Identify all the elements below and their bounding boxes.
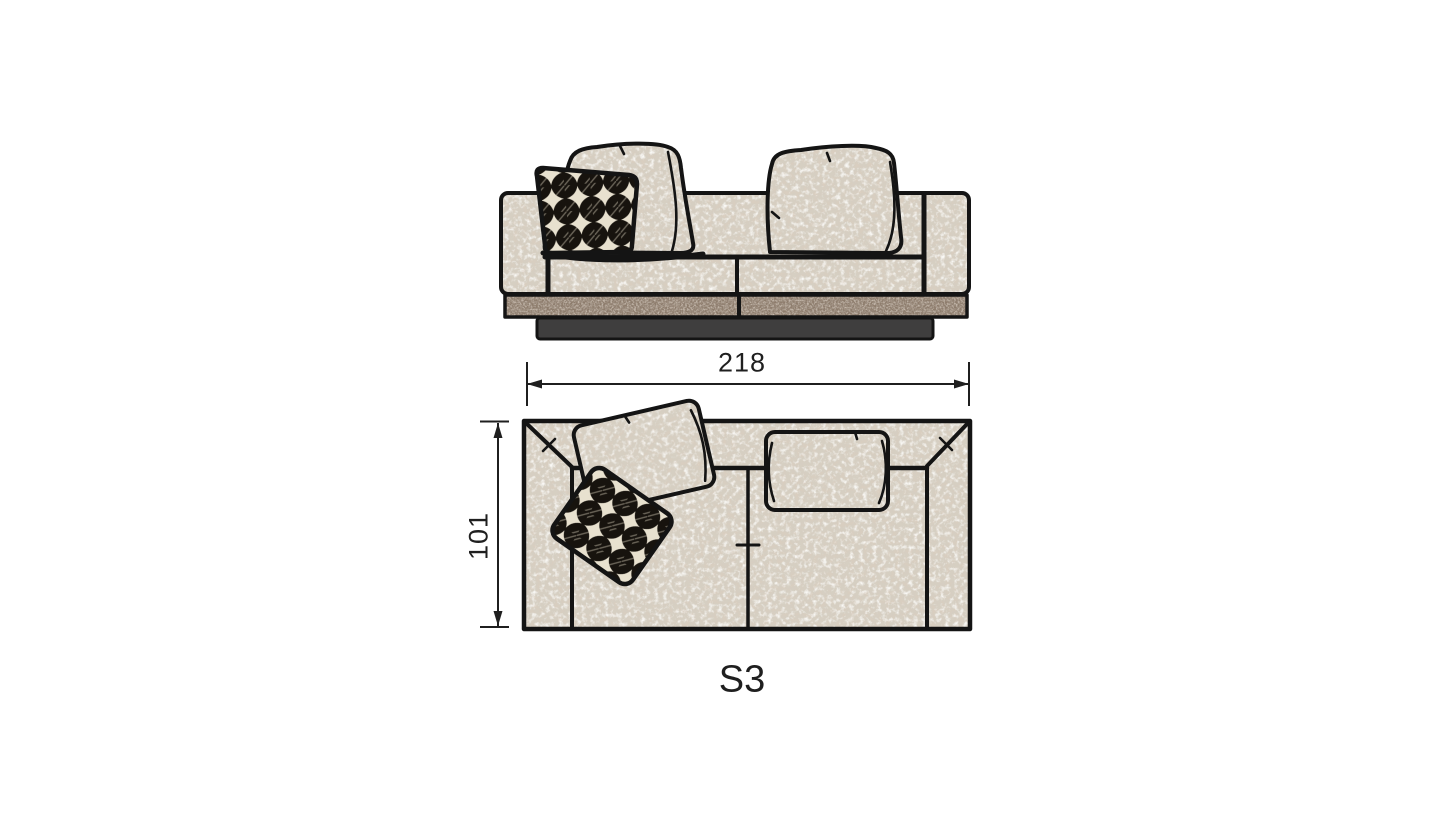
- accent-pillow-fill: [537, 168, 637, 253]
- front-view: [501, 144, 969, 339]
- sofa-technical-drawing: 218 101 S3: [0, 0, 1445, 813]
- width-dimension-value: 218: [718, 348, 766, 379]
- arrow-down-icon: [494, 611, 503, 626]
- model-label: S3: [719, 659, 765, 702]
- arrow-left-icon: [527, 380, 542, 389]
- plan-back-cushion-right: [766, 432, 888, 510]
- arrow-right-icon: [954, 380, 969, 389]
- base-leather: [505, 295, 967, 317]
- depth-dimension-value: 101: [464, 512, 495, 560]
- plan-view: [524, 399, 970, 629]
- back-cushion-right: [768, 146, 902, 253]
- plinth: [537, 318, 933, 339]
- arrow-up-icon: [494, 423, 503, 438]
